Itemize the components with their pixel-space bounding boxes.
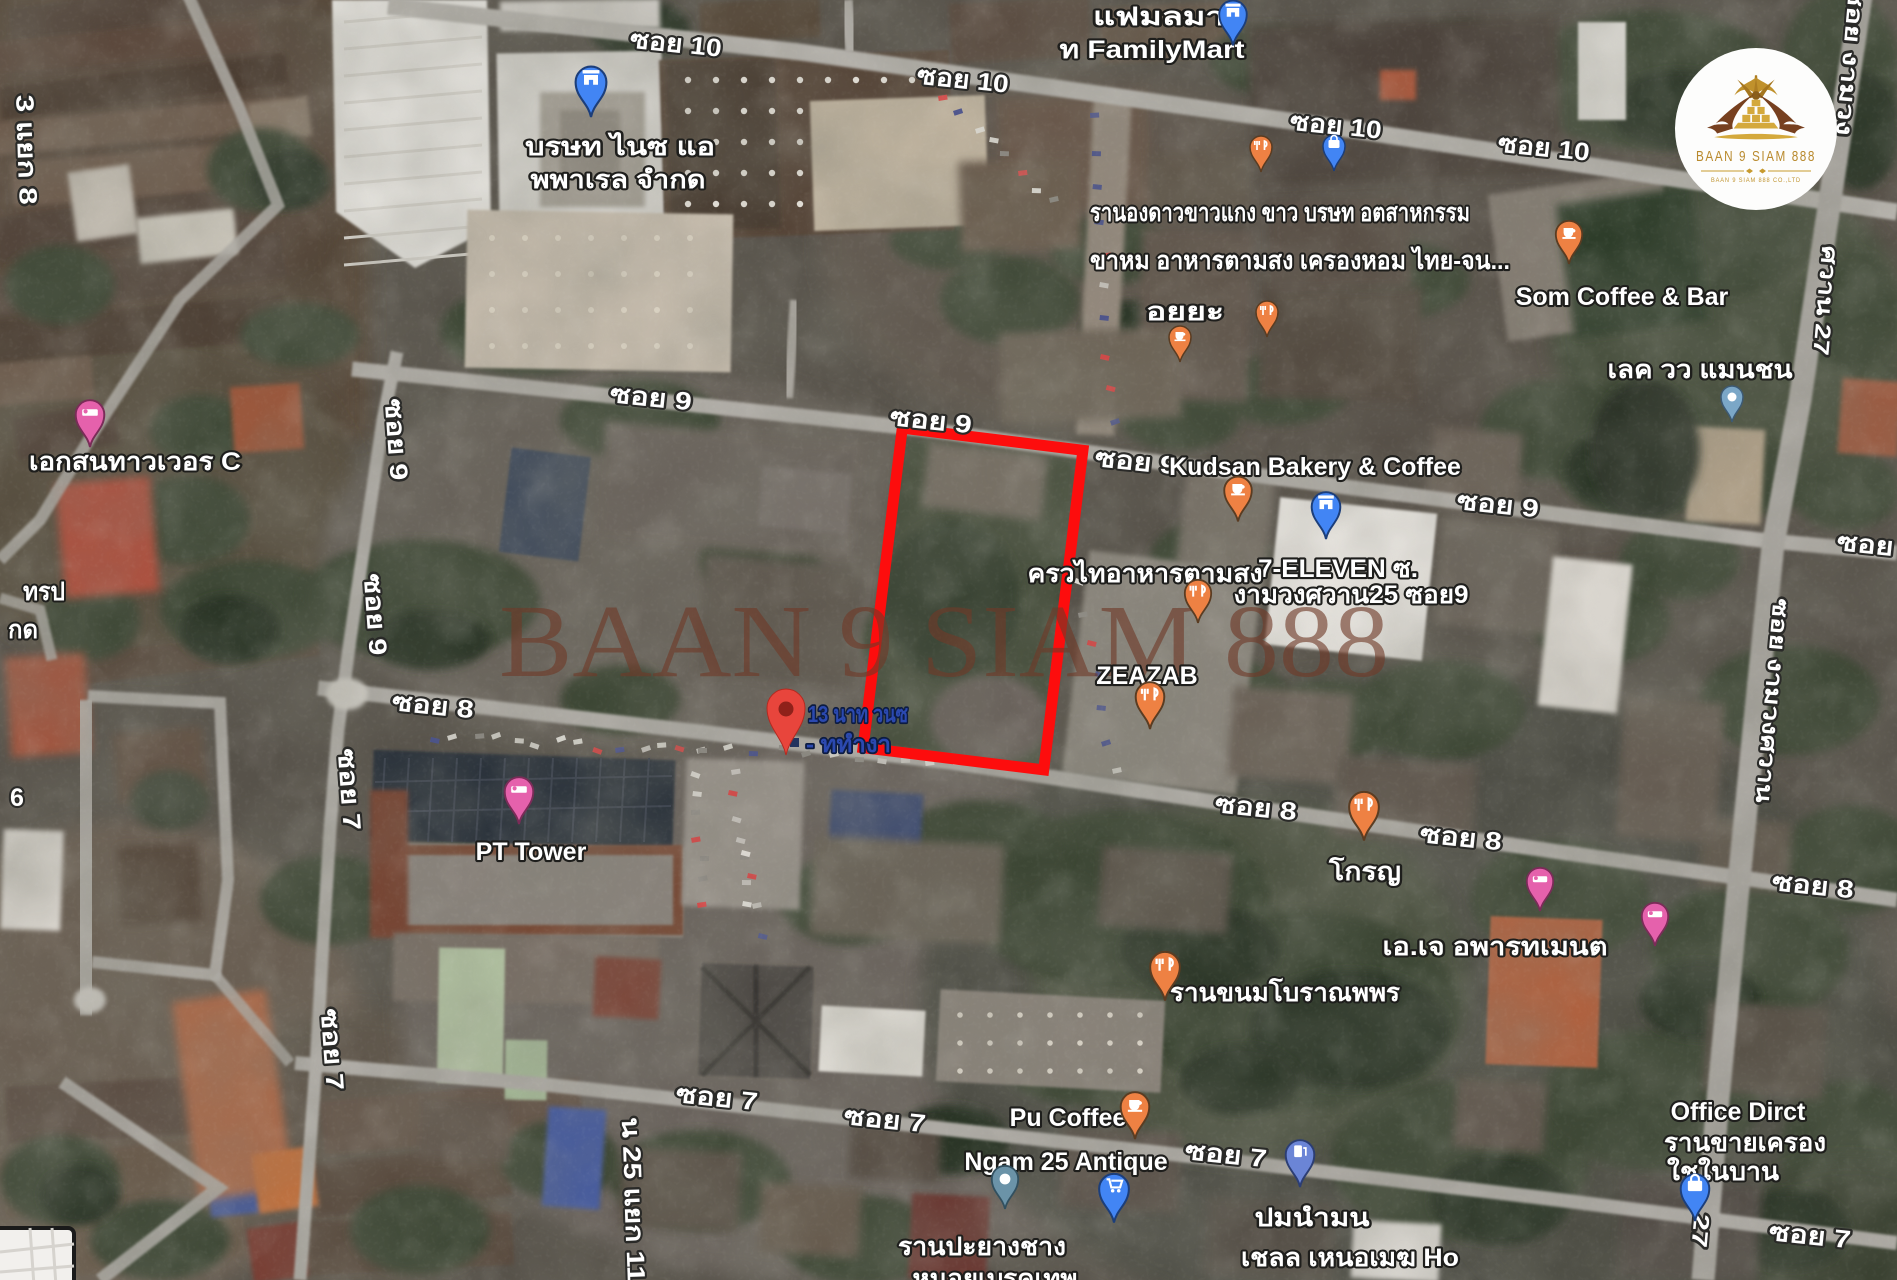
svg-text:Office Dirct: Office Dirct [1671, 1098, 1806, 1126]
svg-text:รานปะยางชาง: รานปะยางชาง [898, 1233, 1066, 1261]
svg-text:- ททำงา: - ททำงา [806, 731, 891, 757]
svg-text:รานขนมโบราณพพร: รานขนมโบราณพพร [1170, 977, 1401, 1007]
svg-text:BAAN 9 SIAM 888 CO.,LTD: BAAN 9 SIAM 888 CO.,LTD [1711, 177, 1801, 184]
svg-text:7-ELEVEN ซ.: 7-ELEVEN ซ. [1258, 555, 1418, 583]
svg-text:กด: กด [8, 616, 38, 644]
svg-text:ทรป: ทรป [23, 578, 65, 606]
svg-text:ปมนำมน: ปมนำมน [1255, 1204, 1370, 1232]
svg-text:6: 6 [10, 784, 24, 812]
svg-text:Som Coffee & Bar: Som Coffee & Bar [1516, 283, 1729, 311]
svg-text:เอกสนทาวเวอร C: เอกสนทาวเวอร C [29, 448, 241, 476]
svg-text:ซอย 7: ซอย 7 [332, 748, 366, 832]
svg-text:Pu Coffee: Pu Coffee [1010, 1104, 1127, 1132]
svg-text:3 แยก 8: 3 แยก 8 [10, 94, 42, 205]
svg-text:ขาหม อาหารตามสง เครองหอม ไทย-จ: ขาหม อาหารตามสง เครองหอม ไทย-จน... [1090, 245, 1510, 275]
svg-text:งามวงศวาน25 ซอย9: งามวงศวาน25 ซอย9 [1234, 581, 1469, 609]
svg-text:รานองดาวขาวแกง ขาว บรษท อตสาหก: รานองดาวขาวแกง ขาว บรษท อตสาหกรรม [1090, 199, 1470, 227]
svg-text:เอ.เจ อพารทเมนต: เอ.เจ อพารทเมนต [1383, 933, 1608, 961]
svg-text:บรษท ไนซ แอ: บรษท ไนซ แอ [525, 131, 715, 161]
svg-text:Kudsan Bakery & Coffee: Kudsan Bakery & Coffee [1169, 453, 1461, 481]
svg-text:น 25 แยก 11: น 25 แยก 11 [616, 1117, 650, 1280]
svg-text:เชลล เหนอเมฆ Ho: เชลล เหนอเมฆ Ho [1241, 1244, 1459, 1272]
svg-text:พพาเรล จำกด: พพาเรล จำกด [531, 166, 706, 194]
svg-text:หนอยเบรคเทพ: หนอยเบรคเทพ [913, 1265, 1078, 1280]
svg-text:โกรญ: โกรญ [1328, 856, 1401, 886]
svg-text:รานขายเครอง: รานขายเครอง [1664, 1129, 1826, 1157]
svg-text:PT Tower: PT Tower [476, 838, 587, 866]
svg-text:13 นาท วนซ: 13 นาท วนซ [808, 701, 908, 727]
svg-text:ครวไทอาหารตามสง: ครวไทอาหารตามสง [1028, 558, 1263, 588]
svg-text:ซอย 9: ซอย 9 [379, 398, 413, 482]
svg-text:ท FamilyMart: ท FamilyMart [1060, 36, 1246, 64]
svg-text:ซอย 9: ซอย 9 [358, 573, 392, 657]
svg-text:อยยะ: อยยะ [1146, 298, 1224, 326]
svg-text:BAAN 9 SIAM 888: BAAN 9 SIAM 888 [1696, 148, 1816, 165]
svg-text:ซอย 7: ซอย 7 [315, 1008, 349, 1092]
svg-text:เลค วว แมนชน: เลค วว แมนชน [1608, 356, 1793, 384]
svg-text:27: 27 [1687, 1213, 1715, 1249]
